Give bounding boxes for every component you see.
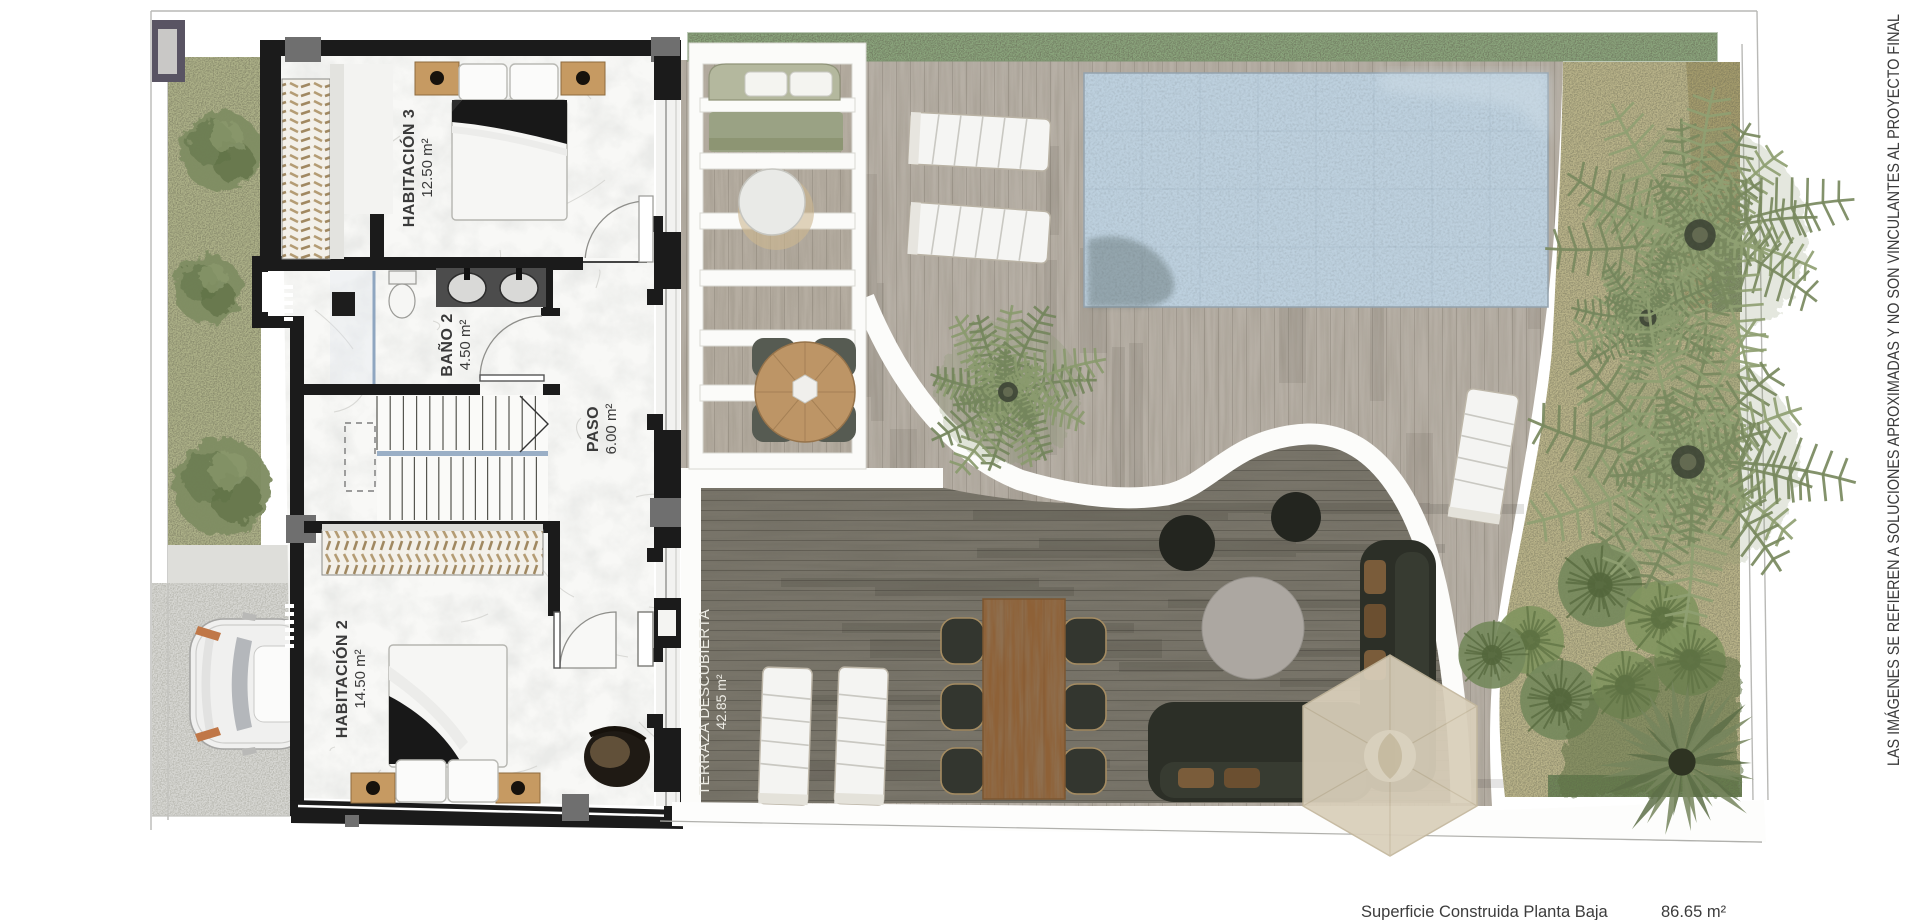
svg-text:HABITACIÓN 3: HABITACIÓN 3 <box>399 109 418 228</box>
svg-text:4.50 m²: 4.50 m² <box>457 320 474 371</box>
svg-text:14.50 m²: 14.50 m² <box>352 649 369 708</box>
svg-text:42.85 m²: 42.85 m² <box>713 674 729 730</box>
svg-text:Superficie Construida Planta B: Superficie Construida Planta Baja <box>1361 903 1609 920</box>
svg-text:12.50 m²: 12.50 m² <box>419 138 436 197</box>
svg-text:BAÑO 2: BAÑO 2 <box>436 313 456 376</box>
svg-text:6.00 m²: 6.00 m² <box>603 404 620 455</box>
svg-text:86.65 m²: 86.65 m² <box>1661 903 1727 920</box>
svg-text:LAS IMÁGENES SE REFIEREN A SOL: LAS IMÁGENES SE REFIEREN A SOLUCIONES AP… <box>1884 14 1903 766</box>
svg-text:TERRAZA DESCUBIERTA: TERRAZA DESCUBIERTA <box>696 609 713 795</box>
svg-text:HABITACIÓN 2: HABITACIÓN 2 <box>332 620 351 739</box>
svg-text:PASO: PASO <box>585 406 602 452</box>
